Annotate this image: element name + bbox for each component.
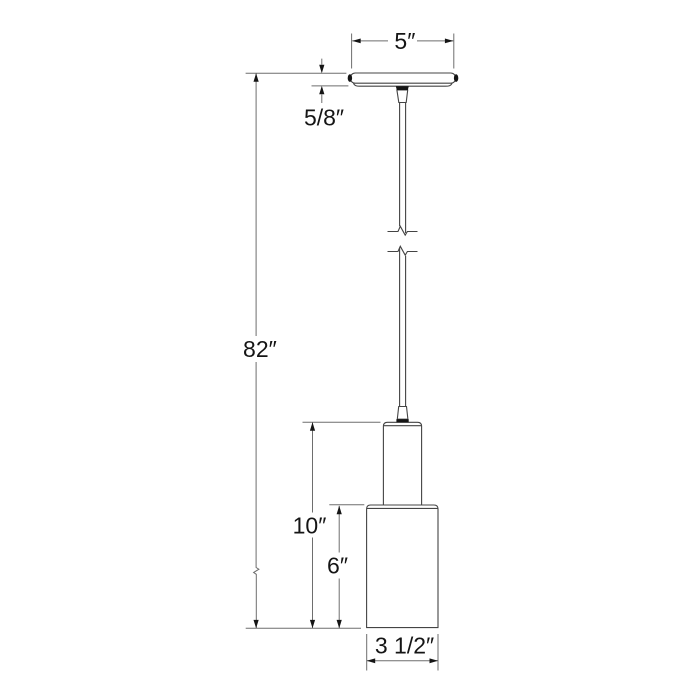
svg-text:5/8″: 5/8″ (304, 105, 344, 131)
svg-text:10″: 10″ (293, 512, 327, 538)
svg-text:5″: 5″ (394, 28, 415, 54)
svg-text:6″: 6″ (327, 553, 348, 579)
svg-text:3 1/2″: 3 1/2″ (375, 633, 434, 659)
svg-text:82″: 82″ (243, 336, 277, 362)
